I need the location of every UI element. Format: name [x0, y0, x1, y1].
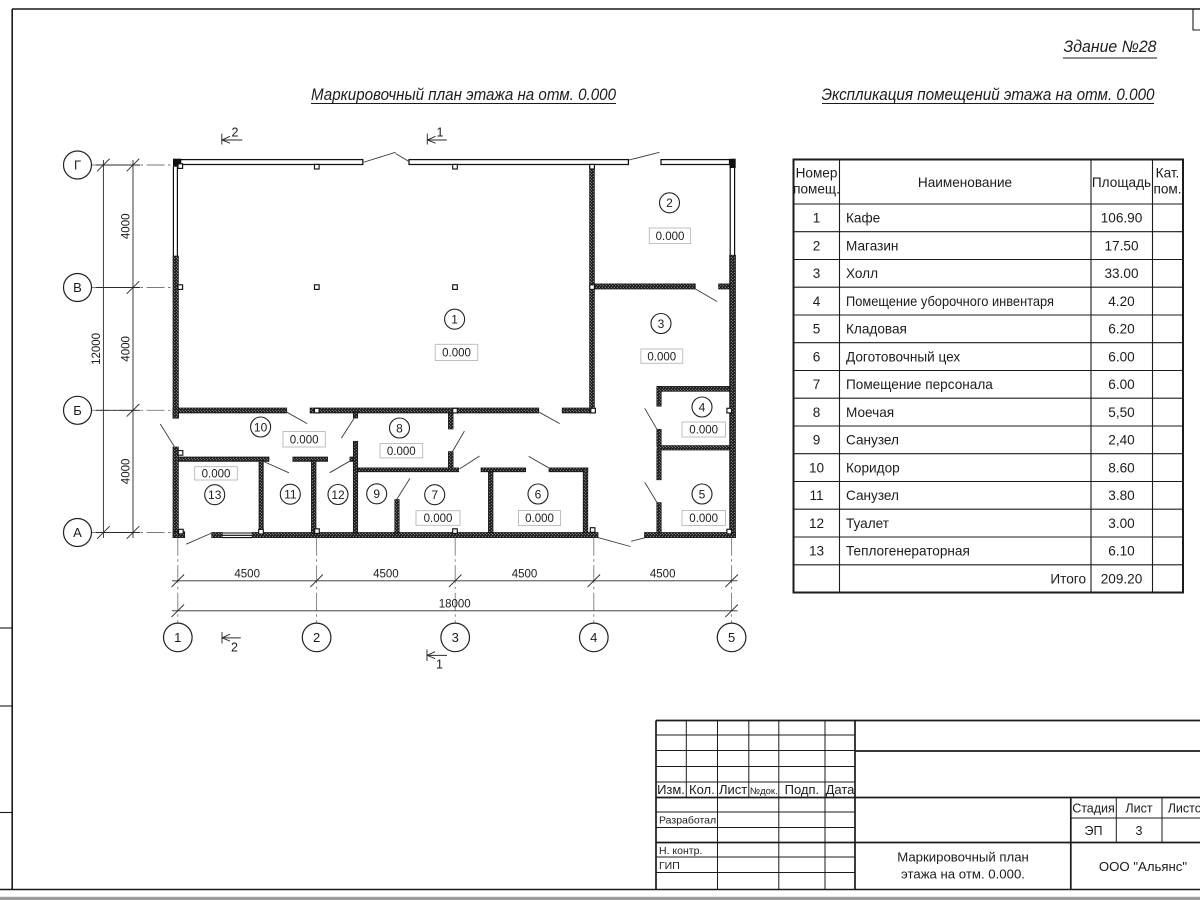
svg-text:В: В	[73, 280, 82, 295]
svg-text:этажа на отм. 0.000.: этажа на отм. 0.000.	[901, 867, 1025, 882]
svg-text:13: 13	[208, 488, 222, 502]
svg-text:ЭП: ЭП	[1085, 824, 1103, 838]
svg-text:2: 2	[666, 196, 673, 210]
svg-text:Санузел: Санузел	[846, 488, 899, 503]
svg-text:0.000: 0.000	[647, 351, 676, 363]
svg-text:3.00: 3.00	[1108, 516, 1135, 531]
svg-text:Помещение персонала: Помещение персонала	[846, 377, 993, 392]
svg-text:7: 7	[431, 488, 438, 502]
svg-text:Номер: Номер	[796, 166, 838, 181]
svg-text:7: 7	[813, 377, 821, 392]
svg-text:Разработал: Разработал	[659, 815, 716, 827]
svg-text:18000: 18000	[439, 598, 471, 610]
svg-text:3: 3	[1136, 824, 1143, 838]
svg-text:Лист: Лист	[719, 782, 747, 797]
svg-text:Кладовая: Кладовая	[846, 322, 907, 337]
svg-text:Наименование: Наименование	[918, 175, 1012, 190]
svg-text:1: 1	[813, 211, 821, 226]
svg-text:8.60: 8.60	[1108, 460, 1135, 475]
svg-text:4000: 4000	[121, 459, 133, 485]
svg-text:209.20: 209.20	[1101, 571, 1143, 586]
svg-text:Магазин: Магазин	[846, 238, 898, 253]
svg-text:8: 8	[813, 405, 821, 420]
svg-text:Моечая: Моечая	[846, 405, 894, 420]
svg-text:Доготовочный цех: Доготовочный цех	[846, 349, 960, 364]
svg-text:4.20: 4.20	[1108, 294, 1135, 309]
svg-text:Лист: Лист	[1125, 802, 1152, 816]
svg-text:5,50: 5,50	[1108, 405, 1135, 420]
svg-text:1: 1	[437, 126, 444, 140]
svg-text:0.000: 0.000	[525, 513, 554, 525]
svg-text:6: 6	[535, 487, 542, 501]
svg-text:2: 2	[231, 641, 238, 655]
svg-text:2,40: 2,40	[1108, 433, 1135, 448]
svg-text:6.20: 6.20	[1108, 322, 1135, 337]
svg-text:4: 4	[699, 400, 706, 414]
svg-text:5: 5	[728, 630, 735, 645]
svg-text:Кафе: Кафе	[846, 211, 880, 226]
svg-text:0.000: 0.000	[290, 435, 319, 447]
svg-text:Теплогенераторная: Теплогенераторная	[846, 544, 970, 559]
svg-text:12: 12	[331, 488, 345, 502]
svg-text:Маркировочный план этажа на от: Маркировочный план этажа на отм. 0.000	[311, 86, 617, 104]
svg-text:2: 2	[313, 630, 320, 645]
svg-text:Изм.: Изм.	[657, 782, 685, 797]
svg-text:Кат.: Кат.	[1156, 166, 1180, 181]
svg-text:1: 1	[436, 658, 443, 672]
svg-text:Н. контр.: Н. контр.	[659, 845, 702, 857]
svg-text:8: 8	[396, 421, 403, 435]
svg-text:4: 4	[590, 630, 597, 645]
svg-text:Санузел: Санузел	[846, 433, 899, 448]
svg-text:Маркировочный план: Маркировочный план	[897, 850, 1029, 865]
svg-text:Дата: Дата	[826, 782, 856, 797]
svg-text:9: 9	[813, 433, 821, 448]
svg-text:помещ.: помещ.	[793, 182, 840, 197]
svg-text:Стадия: Стадия	[1072, 802, 1115, 816]
svg-text:4500: 4500	[650, 569, 676, 581]
svg-text:4500: 4500	[512, 569, 538, 581]
svg-text:0.000: 0.000	[424, 513, 453, 525]
svg-text:ГИП: ГИП	[659, 860, 680, 872]
svg-text:3: 3	[813, 266, 821, 281]
svg-text:9: 9	[373, 487, 380, 501]
svg-text:3: 3	[658, 317, 665, 331]
svg-text:0.000: 0.000	[387, 446, 416, 458]
svg-text:10: 10	[809, 460, 825, 475]
svg-text:6.10: 6.10	[1108, 544, 1135, 559]
svg-text:Экспликация помещений этажа на: Экспликация помещений этажа на отм. 0.00…	[822, 86, 1156, 104]
svg-text:Листов: Листов	[1168, 802, 1200, 816]
svg-text:№док.: №док.	[750, 786, 778, 797]
svg-text:4500: 4500	[373, 569, 399, 581]
svg-text:17.50: 17.50	[1104, 238, 1138, 253]
svg-text:5: 5	[813, 322, 821, 337]
svg-text:33.00: 33.00	[1104, 266, 1138, 281]
svg-text:Подп.: Подп.	[785, 782, 820, 797]
svg-text:1: 1	[174, 630, 181, 645]
svg-text:ООО "Альянс": ООО "Альянс"	[1099, 859, 1187, 874]
svg-text:12: 12	[809, 516, 824, 531]
svg-text:Помещение уборочного инвентаря: Помещение уборочного инвентаря	[846, 294, 1054, 309]
svg-text:3: 3	[452, 630, 459, 645]
svg-text:Б: Б	[73, 403, 82, 418]
svg-text:А: А	[73, 525, 82, 540]
svg-text:0.000: 0.000	[656, 231, 685, 243]
svg-text:3.80: 3.80	[1108, 488, 1135, 503]
svg-text:11: 11	[284, 488, 297, 502]
svg-text:Туалет: Туалет	[846, 516, 889, 531]
svg-text:Г: Г	[74, 158, 81, 173]
svg-text:5: 5	[699, 487, 706, 501]
svg-text:4000: 4000	[121, 336, 133, 362]
svg-text:Площадь: Площадь	[1092, 175, 1151, 190]
svg-text:Итого: Итого	[1050, 571, 1086, 586]
svg-text:6: 6	[813, 349, 821, 364]
svg-text:Кол.: Кол.	[689, 782, 715, 797]
svg-text:6.00: 6.00	[1108, 349, 1135, 364]
svg-text:0.000: 0.000	[689, 425, 718, 437]
svg-text:0.000: 0.000	[689, 513, 718, 525]
svg-text:1: 1	[451, 313, 458, 327]
svg-text:13: 13	[809, 544, 824, 559]
svg-text:10: 10	[254, 420, 268, 434]
svg-text:11: 11	[809, 488, 823, 503]
svg-text:12000: 12000	[91, 333, 103, 365]
svg-text:Коридор: Коридор	[846, 460, 900, 475]
svg-text:0.000: 0.000	[202, 469, 231, 481]
svg-text:Здание №28: Здание №28	[1064, 38, 1158, 56]
svg-text:пом.: пом.	[1153, 182, 1181, 197]
svg-text:4: 4	[813, 294, 821, 309]
svg-text:Холл: Холл	[846, 266, 878, 281]
svg-text:6.00: 6.00	[1108, 377, 1135, 392]
svg-text:2: 2	[232, 126, 239, 140]
svg-text:4500: 4500	[234, 569, 260, 581]
svg-text:106.90: 106.90	[1101, 211, 1143, 226]
svg-text:0.000: 0.000	[442, 348, 471, 360]
svg-text:2: 2	[813, 238, 821, 253]
svg-text:4000: 4000	[121, 214, 133, 240]
